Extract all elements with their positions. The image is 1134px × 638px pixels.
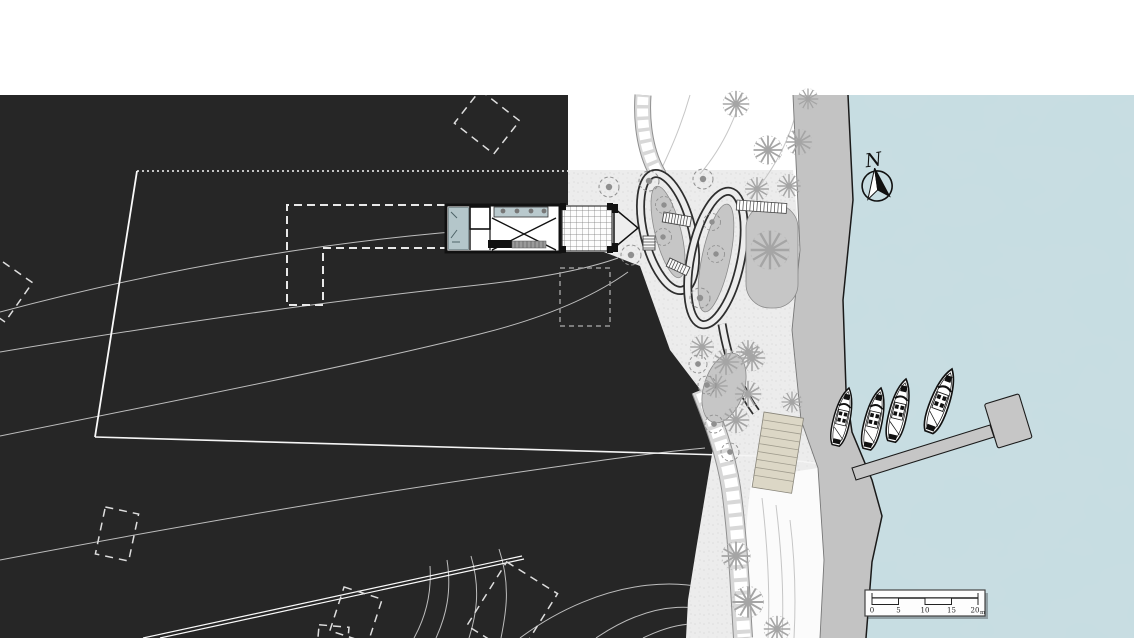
counter-hatched	[512, 241, 546, 248]
scale-label-0: 0	[870, 607, 874, 615]
wet-room	[449, 208, 469, 250]
scale-label-10: 10	[921, 607, 930, 615]
scale-label-5: 5	[896, 607, 900, 615]
scale-label-15: 15	[947, 607, 956, 615]
site-plan-page: ARCHICAD VERSION EDUCATION	[0, 0, 1134, 638]
garden-stairs-2	[643, 236, 655, 250]
scale-unit: m	[980, 610, 986, 616]
scale-bar: 0 5 10 15 20 m	[865, 590, 988, 619]
deck-terrace	[562, 206, 612, 251]
closet-room	[470, 207, 490, 229]
scale-label-20: 20	[971, 607, 980, 615]
shore-lawn-strip	[745, 468, 824, 638]
building-pavilion	[446, 203, 638, 253]
counter-dark	[488, 240, 512, 248]
site-plan-drawing: N 0 5 10 15 20 m	[0, 0, 1134, 638]
